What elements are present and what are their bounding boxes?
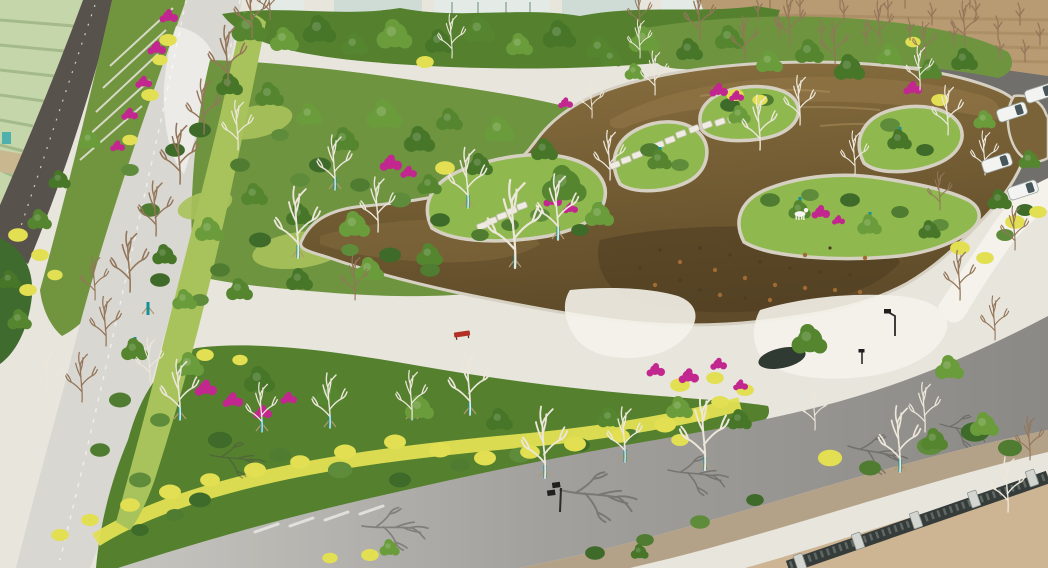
yellow-bush (31, 249, 49, 261)
koi-speckle (828, 246, 831, 249)
bush (189, 123, 211, 138)
bush (166, 509, 184, 521)
yellow-bush (196, 349, 214, 361)
bush (129, 473, 151, 488)
bush (189, 493, 211, 508)
yellow-bush (818, 450, 842, 467)
koi-speckle (678, 278, 681, 281)
bush (341, 244, 359, 256)
bush (430, 213, 450, 227)
koi-speckle (768, 298, 772, 302)
koi-speckle (658, 248, 661, 251)
bush (840, 193, 860, 207)
bush (150, 413, 170, 427)
yellow-bush (232, 355, 247, 366)
yellow-bush (429, 443, 451, 458)
yellow-bush (8, 228, 28, 242)
yellow-bush (384, 435, 406, 450)
yellow-bush (1029, 206, 1047, 218)
koi-speckle (698, 288, 701, 291)
koi-speckle (713, 268, 717, 272)
yellow-bush (950, 241, 970, 255)
bush (916, 144, 934, 156)
koi-speckle (863, 256, 867, 260)
yellow-bush (361, 549, 379, 561)
bush (269, 448, 291, 463)
yellow-bush (654, 418, 676, 433)
bush (389, 473, 411, 488)
koi-speckle (758, 260, 761, 263)
yellow-bush (564, 437, 586, 452)
yellow-bush (159, 34, 177, 46)
bush (109, 393, 131, 408)
koi-speckle (678, 260, 682, 264)
yellow-bush (152, 55, 167, 66)
koi-speckle (743, 276, 747, 280)
bush (208, 432, 232, 449)
bush (290, 173, 310, 187)
yellow-bush (19, 284, 37, 296)
koi-speckle (773, 283, 777, 287)
yellow-bush (706, 372, 724, 384)
bush (230, 158, 250, 172)
bush (571, 224, 589, 236)
yellow-bush (141, 89, 159, 101)
koi-speckle (718, 293, 722, 297)
koi-speckle (653, 283, 657, 287)
bush (271, 129, 289, 141)
bush (998, 440, 1022, 457)
yellow-bush (976, 252, 994, 264)
aerial-park-photo (0, 0, 1048, 568)
bush (760, 193, 780, 207)
bush (309, 158, 331, 173)
yellow-bush (120, 498, 140, 512)
bush (328, 462, 352, 479)
bush (801, 189, 819, 201)
bush (420, 263, 440, 277)
bush (150, 273, 170, 287)
yellow-bush (322, 553, 337, 564)
bush (249, 233, 271, 248)
bush (379, 248, 401, 263)
yellow-bush (81, 514, 99, 526)
yellow-bush (122, 135, 137, 146)
bush (501, 219, 519, 231)
koi-speckle (858, 290, 862, 294)
park-scene-svg (0, 0, 1048, 568)
koi-speckle (638, 266, 641, 269)
yellow-bush (51, 529, 69, 541)
koi-speckle (803, 253, 807, 257)
bush (585, 546, 605, 560)
farm-teal-tarp (2, 132, 11, 144)
bush (210, 263, 230, 277)
yellow-bush (244, 463, 266, 478)
bush (746, 494, 764, 506)
bush (121, 164, 139, 176)
bush (690, 515, 710, 529)
koi-speckle (743, 296, 746, 299)
yellow-bush (711, 396, 729, 408)
yellow-bush (334, 445, 356, 460)
koi-speckle (848, 273, 851, 276)
bush (450, 458, 470, 472)
koi-speckle (728, 253, 731, 256)
bush (90, 443, 110, 457)
yellow-bush (474, 451, 496, 466)
koi-speckle (803, 286, 807, 290)
bush (891, 206, 909, 218)
yellow-bush (200, 473, 220, 487)
yellow-bush (435, 161, 455, 175)
yellow-bush (416, 56, 434, 68)
koi-speckle (833, 288, 837, 292)
yellow-bush (47, 270, 62, 281)
koi-speckle (818, 270, 821, 273)
yellow-bush (290, 455, 310, 469)
bush (350, 178, 370, 192)
koi-speckle (788, 266, 791, 269)
bush (471, 229, 489, 241)
bush (131, 524, 149, 536)
bush (859, 461, 881, 476)
yellow-bush (159, 485, 181, 500)
bush (671, 159, 689, 171)
koi-speckle (698, 246, 701, 249)
yellow-bush (520, 445, 540, 459)
